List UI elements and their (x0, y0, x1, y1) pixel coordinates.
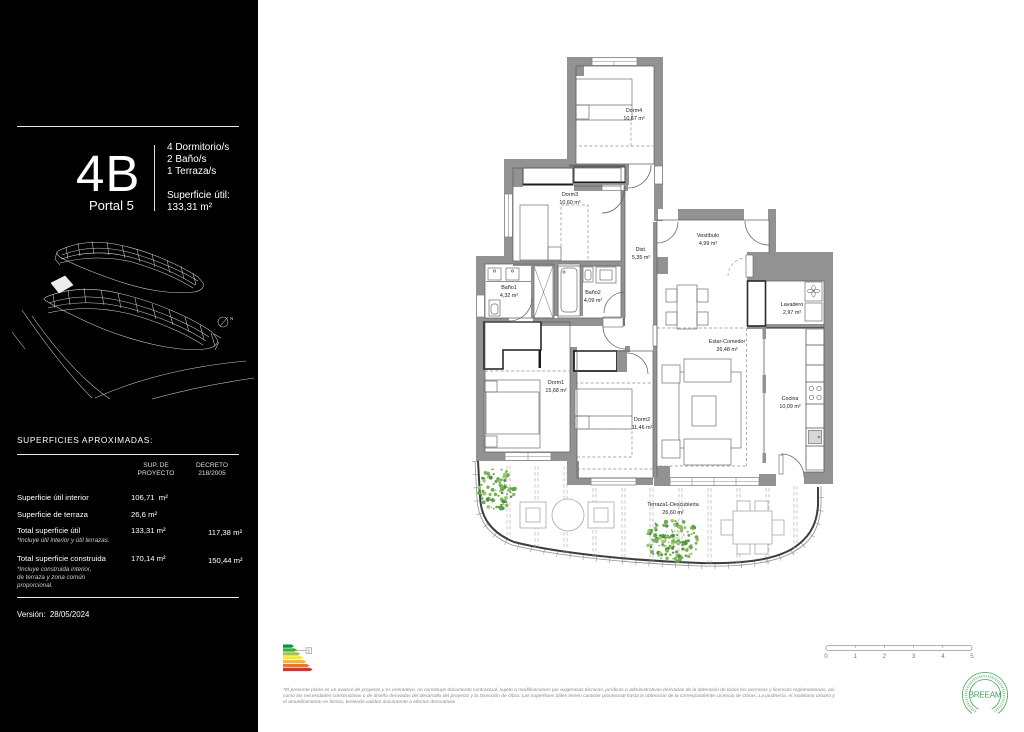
svg-text:15,68 m²: 15,68 m² (545, 388, 566, 394)
svg-text:26,48 m²: 26,48 m² (716, 347, 737, 353)
svg-text:Baño1: Baño1 (501, 285, 517, 291)
svg-text:10,67 m²: 10,67 m² (623, 116, 644, 122)
svg-text:11,46 m²: 11,46 m² (632, 425, 653, 431)
svg-text:Dorm4: Dorm4 (626, 108, 642, 114)
svg-text:10,60 m²: 10,60 m² (559, 200, 580, 206)
svg-text:5,35 m²: 5,35 m² (632, 255, 650, 261)
svg-text:4,32 m²: 4,32 m² (500, 293, 518, 299)
svg-text:Cocina: Cocina (782, 396, 799, 402)
svg-text:B: B (307, 648, 310, 653)
svg-text:Dorm1: Dorm1 (548, 380, 564, 386)
svg-text:10,09 m²: 10,09 m² (779, 404, 800, 410)
svg-text:2,97 m²: 2,97 m² (783, 310, 801, 316)
svg-text:Dorm2: Dorm2 (634, 417, 650, 423)
svg-text:26,60 m²: 26,60 m² (662, 510, 683, 516)
svg-text:Baño2: Baño2 (585, 290, 601, 296)
svg-text:3: 3 (912, 653, 916, 660)
svg-text:BREEAM: BREEAM (969, 691, 1002, 700)
svg-text:Vestíbulo: Vestíbulo (697, 233, 719, 239)
svg-text:Dorm3: Dorm3 (562, 192, 578, 198)
svg-text:Dist.: Dist. (636, 247, 647, 253)
svg-text:Lavadero: Lavadero (781, 302, 803, 308)
svg-text:Estar-Comedor: Estar-Comedor (709, 339, 746, 345)
svg-text:4,99 m²: 4,99 m² (699, 241, 717, 247)
svg-text:0: 0 (824, 653, 828, 660)
svg-text:Terraza1-Descubierta: Terraza1-Descubierta (647, 502, 699, 508)
svg-text:5: 5 (970, 653, 974, 660)
svg-text:1: 1 (853, 653, 857, 660)
svg-text:2: 2 (883, 653, 887, 660)
svg-text:4: 4 (941, 653, 945, 660)
svg-text:4,09 m²: 4,09 m² (584, 298, 602, 304)
